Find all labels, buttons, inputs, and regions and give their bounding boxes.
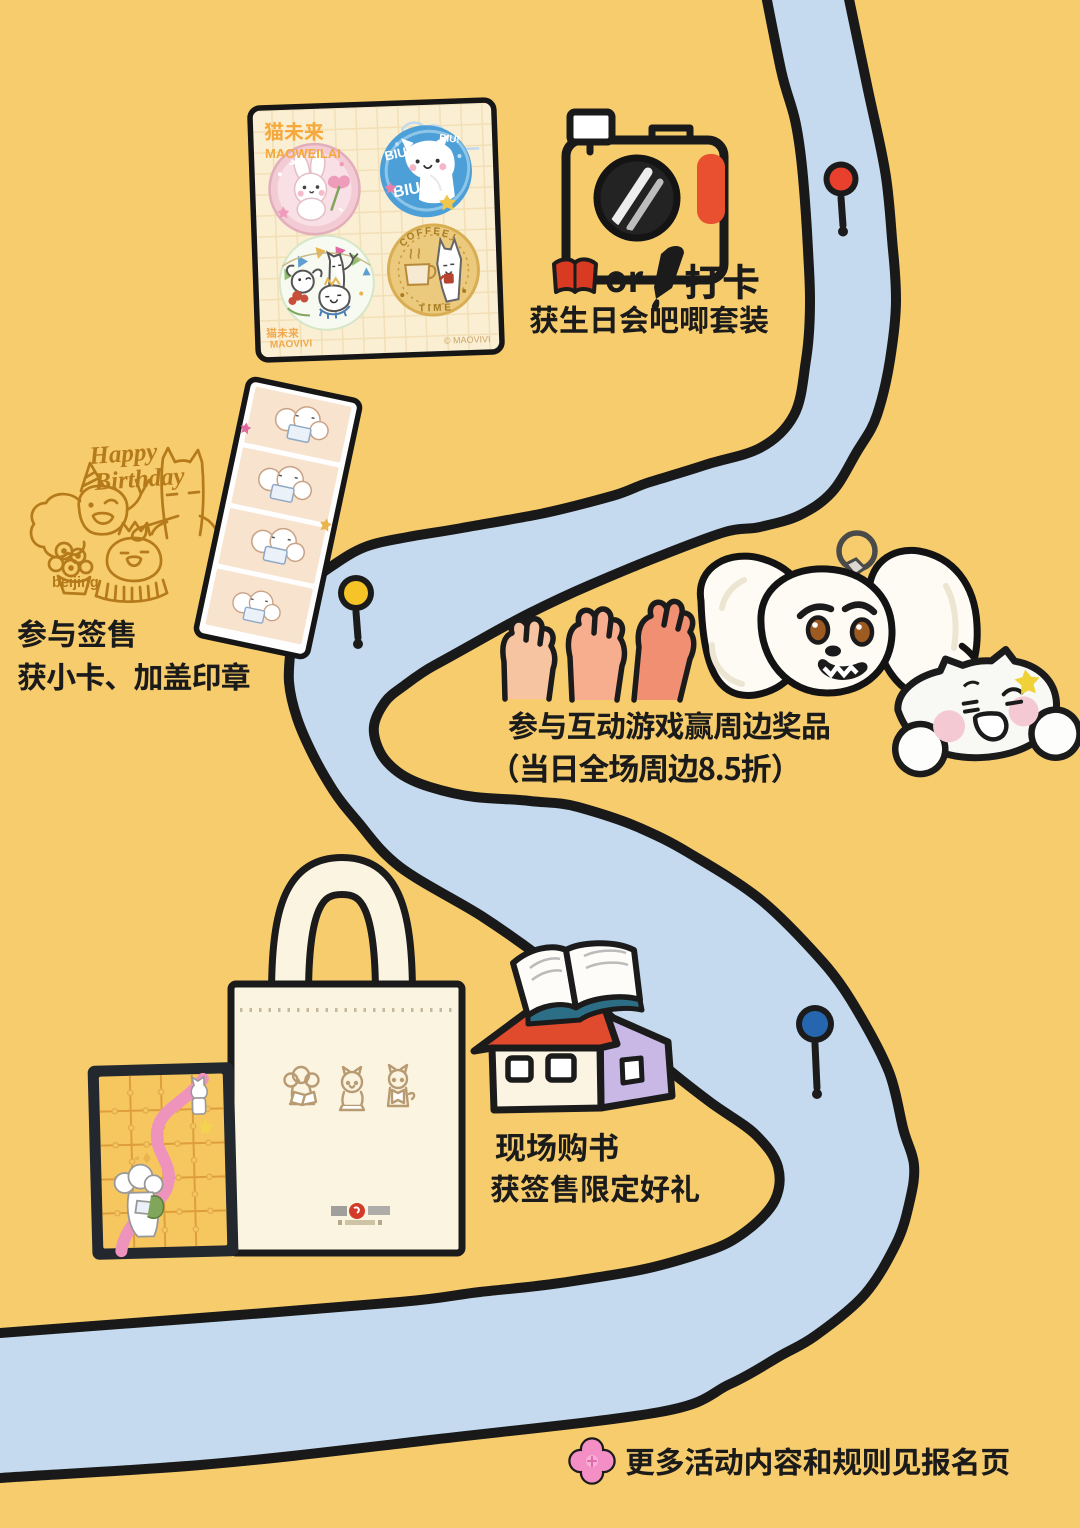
svg-text:beijing: beijing: [52, 575, 99, 591]
svg-text:BIU!: BIU!: [439, 133, 461, 146]
svg-text:MAOVIVI: MAOVIVI: [270, 338, 313, 350]
svg-text:F: F: [425, 226, 431, 237]
svg-text:MAOWEILAI: MAOWEILAI: [265, 146, 341, 161]
svg-text:© MAOVIVI: © MAOVIVI: [444, 334, 491, 346]
svg-text:T I M E: T I M E: [419, 302, 452, 314]
